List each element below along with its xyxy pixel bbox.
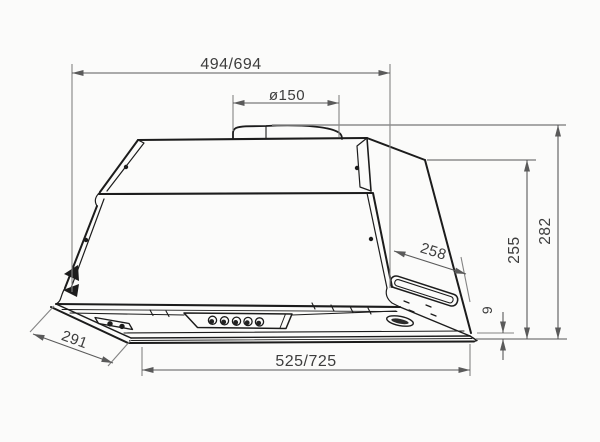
bottom-edge bbox=[56, 304, 400, 307]
mid-fold-edge bbox=[99, 193, 372, 194]
bottom-edge-inner bbox=[62, 310, 397, 312]
dim-bottom-depth-label: 291 bbox=[59, 327, 90, 352]
duct-collar bbox=[233, 125, 342, 139]
screenshot-root: 494/694 ø150 282 255 9 258 291 bbox=[0, 0, 600, 442]
mounting-clip bbox=[63, 265, 79, 297]
lamp-left bbox=[95, 318, 133, 330]
dim-bottom-lip-label: 9 bbox=[479, 306, 495, 314]
dim-duct-diameter-label: ø150 bbox=[269, 87, 305, 104]
dim-bottom-width: 525/725 bbox=[142, 344, 470, 376]
dim-duct-diameter: ø150 bbox=[233, 87, 339, 137]
dim-top-width-label: 494/694 bbox=[200, 56, 261, 73]
lamp-right bbox=[386, 314, 414, 328]
hood-technical-drawing: 494/694 ø150 282 255 9 258 291 bbox=[0, 0, 600, 442]
weld-dot bbox=[369, 237, 373, 241]
dim-side-depth: 258 bbox=[394, 240, 470, 302]
side-panel-screw-marks bbox=[404, 301, 436, 316]
weld-dot bbox=[355, 166, 359, 170]
top-edge bbox=[138, 138, 367, 140]
control-panel bbox=[184, 313, 292, 329]
dim-overall-height-label: 282 bbox=[537, 217, 554, 244]
dim-bottom-width-label: 525/725 bbox=[275, 353, 336, 370]
side-vent-slot bbox=[389, 275, 459, 308]
hood-body bbox=[51, 125, 477, 343]
dim-bottom-lip: 9 bbox=[477, 306, 514, 360]
control-buttons bbox=[208, 316, 263, 326]
dim-body-height-label: 255 bbox=[506, 236, 523, 263]
weld-dot bbox=[84, 238, 88, 242]
weld-dot bbox=[124, 165, 128, 169]
